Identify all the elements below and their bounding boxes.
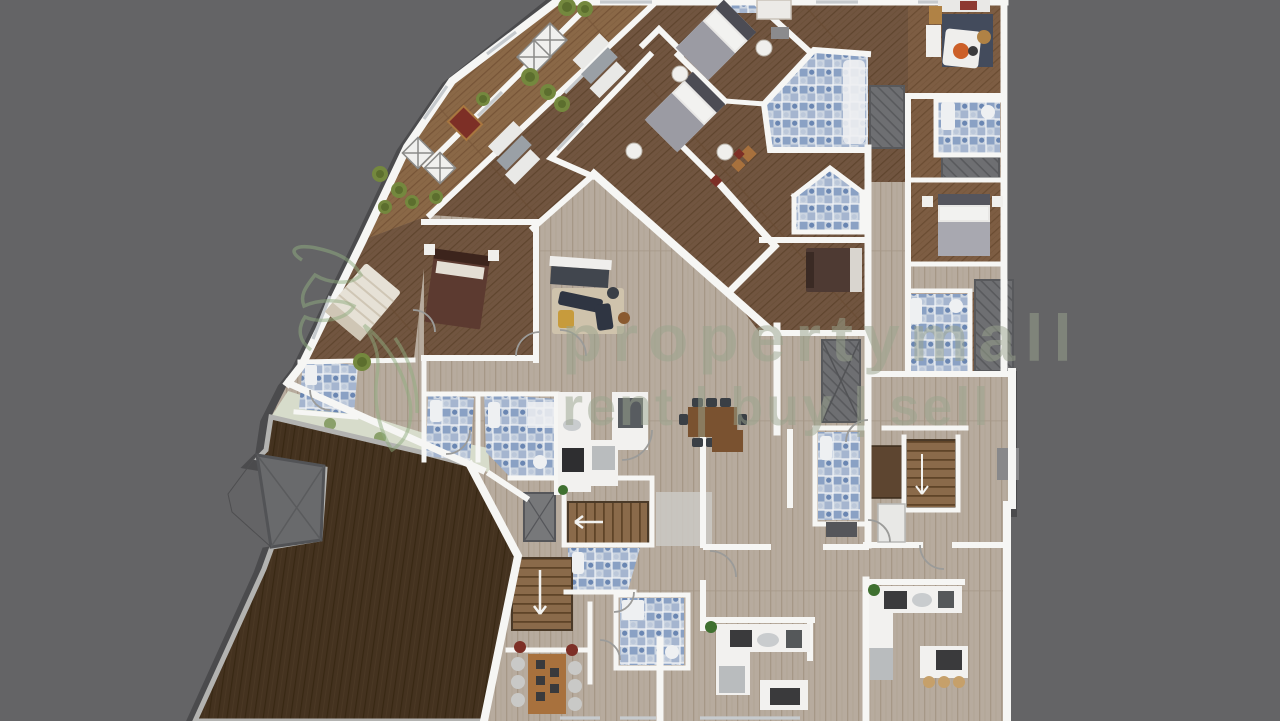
svg-text:propertymall: propertymall (562, 301, 1082, 375)
svg-text:rent | buy | sell: rent | buy | sell (562, 377, 991, 438)
